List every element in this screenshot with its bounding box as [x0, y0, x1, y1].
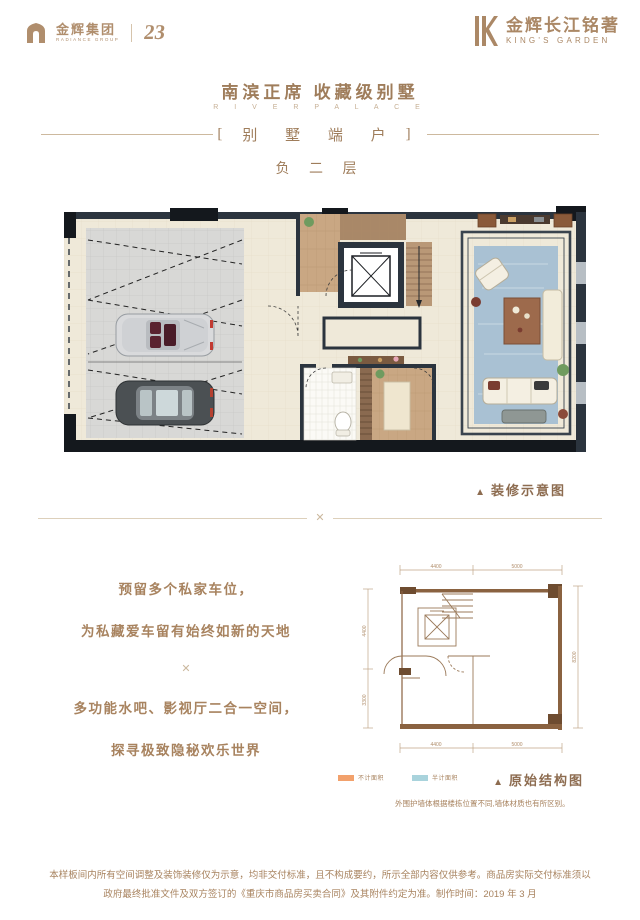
triangle-icon: ▲ [493, 777, 505, 788]
wine-rack [360, 368, 372, 440]
elevator [338, 242, 404, 308]
disclaimer-line-2: 政府最终批准文件及双方签订的《重庆市商品房买卖合同》及其附件约定为准。制作时间：… [30, 885, 610, 904]
disclaimer-line-1: 本样板间内所有空间调整及装饰装修仅为示意，均非交付标准，且不构成要约，所示全部内… [30, 866, 610, 885]
brand-right-cn: 金辉长江铭著 [506, 17, 620, 34]
dim-top-1: 4400 [430, 564, 441, 570]
dim-right-1: 8200 [572, 651, 578, 662]
legend-item-excluded: 不计面积 [338, 773, 384, 782]
legend-swatch-blue-rect [412, 775, 428, 781]
banner-bracket-open: [ [213, 126, 238, 143]
coffee-table [504, 298, 540, 344]
structure-legend: 不计面积 半计面积 [338, 773, 458, 782]
structure-plan: 4400 5000 4400 5000 4400 3300 8200 [330, 556, 592, 796]
brand-left-en: RADIANCE GROUP [56, 38, 119, 43]
feature-line-2: 为私藏爱车留有始终如新的天地 [40, 620, 332, 640]
structure-plan-note: 外围护墙体根据楼栋位置不同,墙体材质也有所区别。 [395, 799, 605, 810]
structure-plan-caption-label: 原始结构图 [509, 773, 584, 788]
brand-left-cn: 金辉集团 [56, 23, 119, 36]
anniversary-23: 23 [143, 20, 168, 45]
kings-garden-icon [473, 14, 499, 48]
dim-top-2: 5000 [511, 564, 522, 570]
divider-ornament-icon: ✕ [307, 513, 332, 524]
dim-left-2: 3300 [362, 694, 368, 705]
tv-unit [502, 410, 546, 423]
banner-villa-end-unit: [ 别 墅 端 户 ] [0, 124, 640, 145]
plant [304, 217, 314, 227]
bar-island [384, 382, 410, 430]
legend-item-half: 半计面积 [412, 773, 458, 782]
car-convertible [116, 314, 214, 356]
dim-left-1: 4400 [362, 625, 368, 636]
legend-swatch-orange [338, 775, 354, 781]
legend-label-half: 半计面积 [432, 773, 458, 782]
brand-logo-left: 金辉集团 RADIANCE GROUP 23 [24, 20, 165, 45]
legend-swatch-blue [412, 775, 428, 781]
page-title: 南滨正席 收藏级别墅 [0, 78, 640, 103]
banner-rule-right [427, 134, 599, 135]
floor-level-label: 负 二 层 [0, 158, 640, 178]
divider-line-left [38, 518, 307, 519]
side-table [471, 297, 481, 307]
page-subtitle: R I V E R P A L A C E [0, 104, 640, 111]
triangle-icon: ▲ [475, 487, 487, 498]
garage-area [86, 228, 244, 438]
poster-page: 金辉集团 RADIANCE GROUP 23 金辉长江铭著 KING'S GAR… [0, 0, 640, 920]
section-divider: ✕ [38, 510, 602, 526]
plant [557, 364, 569, 376]
dim-bottom-2: 5000 [511, 742, 522, 748]
sofa [483, 378, 557, 404]
feature-copy: 预留多个私家车位， 为私藏爱车留有始终如新的天地 ✕ 多功能水吧、影视厅二合一空… [40, 578, 332, 781]
toilet [335, 412, 351, 432]
brand-logo-right: 金辉长江铭著 KING'S GARDEN [473, 14, 620, 48]
legend-label-excluded: 不计面积 [358, 773, 384, 782]
feature-ornament-icon: ✕ [40, 662, 332, 675]
sink [332, 372, 352, 383]
structure-plan-caption: ▲原始结构图 [493, 770, 584, 789]
car-suv [116, 381, 214, 425]
decorated-plan-caption-label: 装修示意图 [491, 483, 566, 498]
console-table [348, 356, 404, 365]
hallway-recess [324, 318, 420, 348]
divider-line-right [333, 518, 602, 519]
window-breaks [576, 262, 586, 404]
decorated-floor-plan [64, 204, 586, 456]
radiance-house-icon [24, 21, 48, 45]
banner-bracket-close: ] [402, 126, 427, 143]
banner-text: 别 墅 端 户 [238, 124, 401, 145]
plant-pot [558, 409, 568, 419]
brand-right-en: KING'S GARDEN [506, 37, 620, 45]
bench [543, 290, 562, 360]
feature-line-4: 探寻极致隐秘欢乐世界 [40, 739, 332, 759]
bathroom [304, 368, 356, 440]
dim-bottom-1: 4400 [430, 742, 441, 748]
structure-interior [384, 594, 490, 724]
bar-room [372, 368, 432, 440]
feature-line-1: 预留多个私家车位， [40, 578, 332, 598]
staircase [406, 242, 432, 308]
legend-swatch-orange-rect [338, 775, 354, 781]
disclaimer: 本样板间内所有空间调整及装饰装修仅为示意，均非交付标准，且不构成要约，所示全部内… [30, 866, 610, 904]
plant [376, 370, 385, 379]
structure-walls [399, 584, 562, 730]
decorated-plan-caption: ▲装修示意图 [475, 480, 566, 499]
feature-line-3: 多功能水吧、影视厅二合一空间， [40, 697, 332, 717]
banner-rule-left [41, 134, 213, 135]
logo-divider [131, 24, 132, 42]
